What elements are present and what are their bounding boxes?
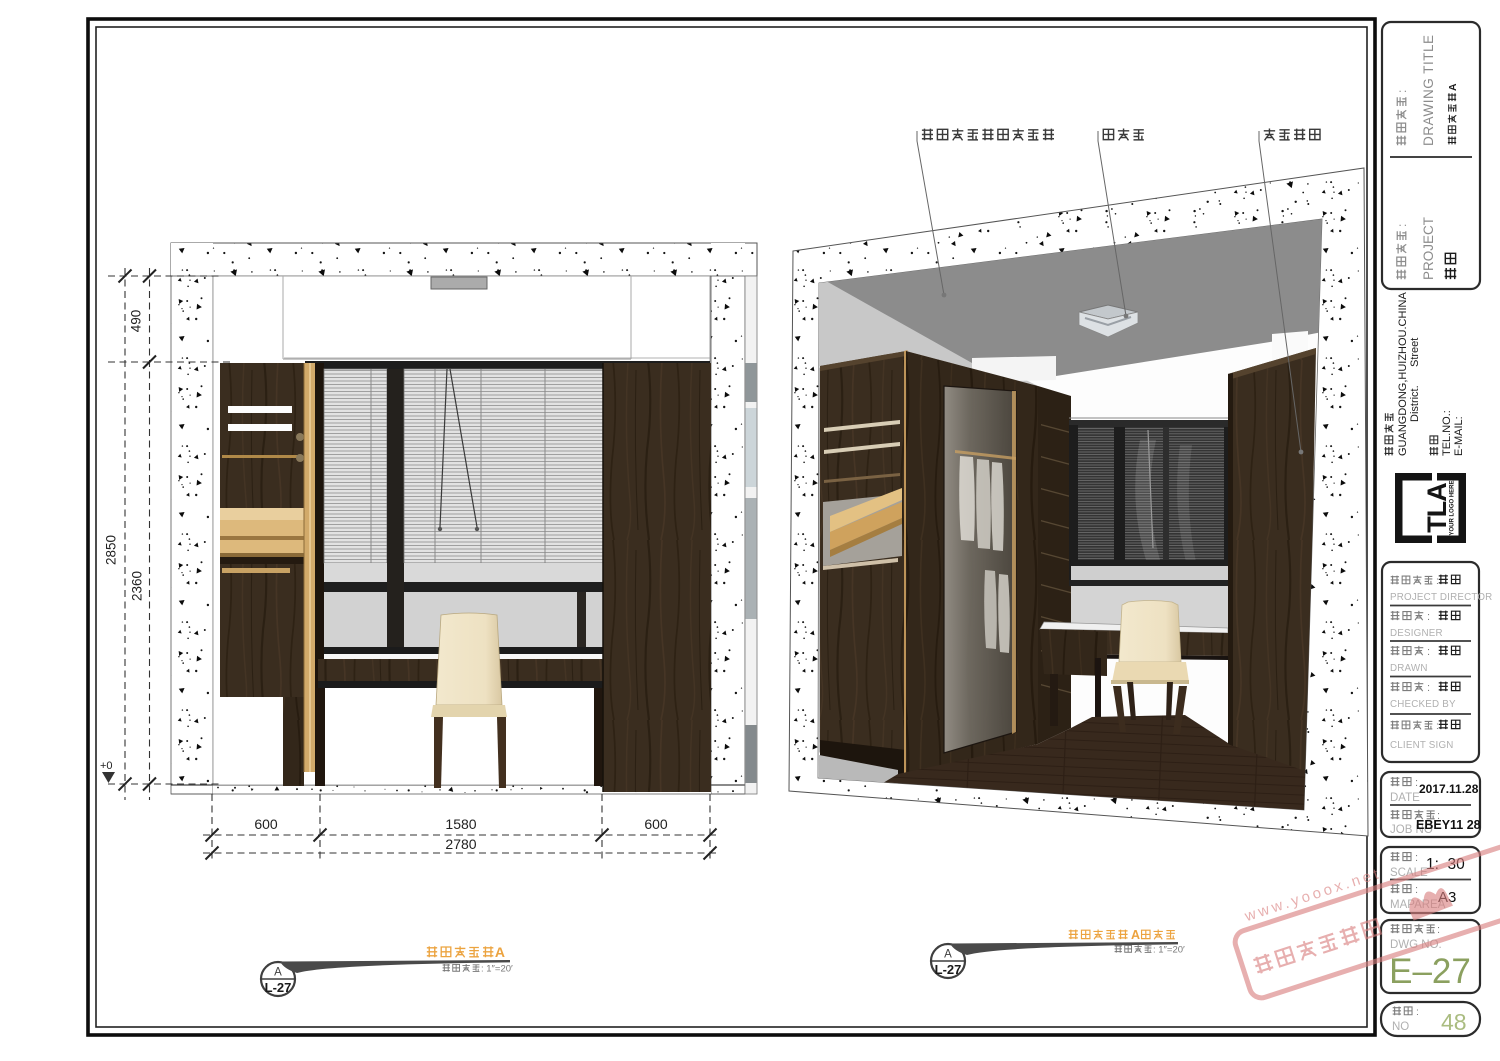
svg-text:A: A bbox=[274, 967, 282, 979]
svg-text::: : bbox=[1427, 682, 1430, 694]
svg-text:600: 600 bbox=[254, 816, 278, 832]
svg-text:DRAWN: DRAWN bbox=[1390, 663, 1428, 674]
svg-text:L-27: L-27 bbox=[935, 962, 962, 977]
svg-text:2360: 2360 bbox=[130, 571, 145, 601]
svg-text:GUANGDONG,HUIZHOU.CHINA: GUANGDONG,HUIZHOU.CHINA bbox=[1397, 292, 1409, 456]
svg-text:A: A bbox=[1131, 928, 1140, 942]
svg-text:CLIENT SIGN: CLIENT SIGN bbox=[1390, 740, 1454, 751]
svg-text:E-MAIL:: E-MAIL: bbox=[1453, 416, 1465, 456]
svg-text:TEL.NO.:: TEL.NO.: bbox=[1441, 410, 1453, 456]
svg-text::: : bbox=[1437, 924, 1440, 936]
svg-text:EBEY11 28: EBEY11 28 bbox=[1416, 818, 1481, 832]
svg-text:DATE: DATE bbox=[1390, 792, 1420, 804]
svg-text:: 1″=20′: : 1″=20′ bbox=[1153, 945, 1185, 956]
svg-text:1580: 1580 bbox=[445, 816, 476, 832]
svg-text:A: A bbox=[944, 949, 952, 961]
svg-text:NO: NO bbox=[1392, 1021, 1409, 1033]
svg-text::: : bbox=[1415, 884, 1418, 896]
svg-text::: : bbox=[1395, 224, 1409, 227]
svg-text::: : bbox=[1395, 90, 1409, 93]
svg-text:2850: 2850 bbox=[104, 535, 119, 565]
svg-text:DESIGNER: DESIGNER bbox=[1390, 628, 1443, 639]
svg-text:District. Street: District. Street bbox=[1409, 338, 1421, 422]
svg-text:A: A bbox=[1447, 83, 1459, 91]
svg-text:CHECKED BY: CHECKED BY bbox=[1390, 699, 1456, 710]
svg-text:+0: +0 bbox=[100, 760, 113, 772]
svg-text::: : bbox=[1415, 777, 1418, 789]
svg-text::: : bbox=[1436, 721, 1439, 732]
svg-text:TLA: TLA bbox=[1422, 483, 1452, 533]
svg-text:A: A bbox=[495, 944, 505, 960]
svg-text::: : bbox=[1427, 646, 1430, 658]
svg-text:490: 490 bbox=[129, 310, 144, 333]
svg-text:YOUR LOGO HERE: YOUR LOGO HERE bbox=[1450, 480, 1456, 535]
svg-text:48: 48 bbox=[1441, 1009, 1467, 1035]
svg-text:DRAWING TITLE: DRAWING TITLE bbox=[1421, 34, 1436, 146]
svg-text::: : bbox=[1416, 1006, 1419, 1018]
svg-text:E–27: E–27 bbox=[1389, 952, 1471, 991]
svg-text::: : bbox=[1427, 611, 1430, 623]
svg-text:PROJECT DIRECTOR: PROJECT DIRECTOR bbox=[1390, 592, 1492, 603]
svg-text:2017.11.28: 2017.11.28 bbox=[1419, 782, 1479, 796]
svg-text::: : bbox=[1415, 852, 1418, 864]
svg-text::: : bbox=[1436, 576, 1439, 587]
svg-text:L-27: L-27 bbox=[265, 980, 292, 995]
svg-text:2780: 2780 bbox=[445, 836, 476, 852]
svg-text:PROJECT: PROJECT bbox=[1421, 217, 1436, 280]
svg-text:600: 600 bbox=[644, 816, 668, 832]
svg-text:: 1″=20′: : 1″=20′ bbox=[481, 964, 513, 975]
